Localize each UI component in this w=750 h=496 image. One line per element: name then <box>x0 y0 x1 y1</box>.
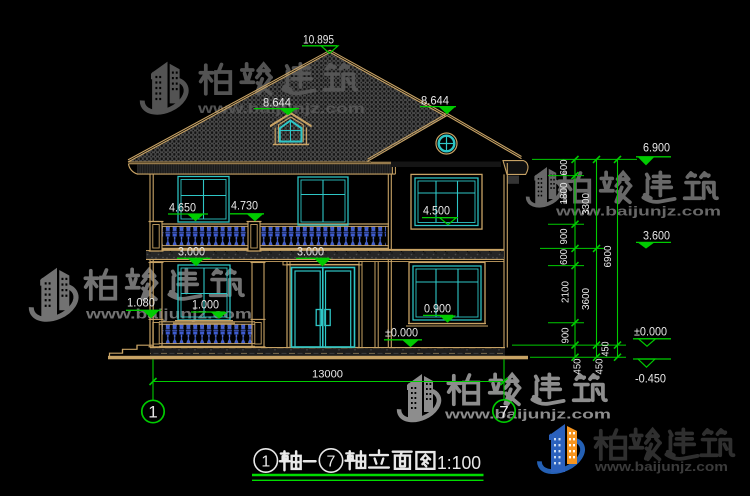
svg-text:6900: 6900 <box>602 245 614 267</box>
svg-text:4.650: 4.650 <box>169 203 196 215</box>
svg-text:3.600: 3.600 <box>643 231 670 243</box>
svg-text:3600: 3600 <box>580 288 592 310</box>
svg-text:www.baijunjz.com: www.baijunjz.com <box>594 460 728 474</box>
svg-text:2100: 2100 <box>560 281 572 303</box>
svg-text:450: 450 <box>600 341 612 356</box>
svg-text:6.900: 6.900 <box>643 143 670 155</box>
svg-text:13000: 13000 <box>312 369 343 381</box>
svg-text:±0.000: ±0.000 <box>385 328 418 340</box>
svg-text:1.080: 1.080 <box>127 298 155 310</box>
svg-text:3.000: 3.000 <box>178 247 205 259</box>
svg-text:3.000: 3.000 <box>297 247 324 259</box>
svg-text:1: 1 <box>261 454 270 471</box>
svg-text:-0.450: -0.450 <box>635 374 666 386</box>
svg-text:450: 450 <box>572 358 584 374</box>
svg-text:0.900: 0.900 <box>424 304 451 316</box>
svg-text:450: 450 <box>594 358 606 374</box>
svg-text:600: 600 <box>558 249 570 265</box>
svg-text:7: 7 <box>499 403 508 422</box>
svg-text:www.baijunjz.com: www.baijunjz.com <box>444 407 611 422</box>
svg-text:900: 900 <box>560 327 572 343</box>
svg-text:3300: 3300 <box>580 193 592 215</box>
svg-text:1: 1 <box>148 403 157 422</box>
svg-text:4.730: 4.730 <box>231 201 258 213</box>
svg-text:8.644: 8.644 <box>263 98 292 110</box>
svg-text:1:100: 1:100 <box>437 452 481 473</box>
svg-text:600: 600 <box>558 159 570 175</box>
svg-text:8.644: 8.644 <box>421 96 450 108</box>
svg-text:900: 900 <box>558 228 570 244</box>
svg-text:±0.000: ±0.000 <box>634 327 667 339</box>
svg-text:10.895: 10.895 <box>303 35 334 47</box>
svg-text:4.500: 4.500 <box>423 206 450 218</box>
svg-text:1.000: 1.000 <box>192 300 219 312</box>
svg-text:7: 7 <box>327 454 336 471</box>
svg-text:1800: 1800 <box>558 182 570 204</box>
